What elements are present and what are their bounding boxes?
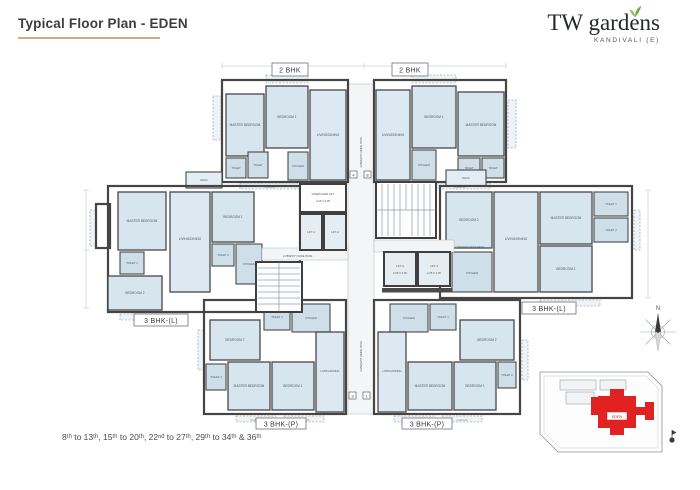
room-label: KITCHEN xyxy=(403,316,415,320)
room-label: LIVING/DINING xyxy=(383,369,402,373)
passage-label: 3.05M(10'0") WIDE PASS. xyxy=(359,136,363,168)
room-label: KITCHEN xyxy=(292,164,304,168)
room-label: TOILET xyxy=(253,163,263,167)
room-label: TOILET 1 xyxy=(126,261,138,265)
unit-3bhk-l-right: DECK CHAJJA BEDROOM 2 LIVING/DINING MAST… xyxy=(440,170,640,314)
lift-4-label: LIFT-4 xyxy=(430,264,438,268)
top-unit-labels: 2 BHK 2 BHK xyxy=(272,63,428,76)
room-label: LIVING/DINING xyxy=(505,237,528,241)
lift-4 xyxy=(418,252,450,286)
passage-label: 2.05M(6'9") WIDE PASS. xyxy=(455,245,485,249)
room-label: MASTER BEDROOM xyxy=(230,123,261,127)
lift-2-label: LIFT-2 xyxy=(331,230,339,234)
unit-label-top-right: 2 BHK xyxy=(399,68,421,75)
north-label: N xyxy=(656,306,660,312)
core-wall xyxy=(382,288,452,293)
room-label: TOILET 2 xyxy=(501,373,513,377)
room-label: BEDROOM 2 xyxy=(125,291,144,295)
room-label: KITCHEN xyxy=(305,316,317,320)
room-label: BEDROOM 1 xyxy=(223,215,242,219)
floor-plan: 3.05M(10'0") WIDE PASS. 3.05M(10'0") WID… xyxy=(0,0,700,490)
lift-3-dim: 2.05 X 2.05 xyxy=(393,271,407,275)
room-label: BEDROOM 2 xyxy=(225,338,244,342)
unit-3bhk-p-left: CHAJJA CHAJJA KITCHEN TOILET 1 BEDROOM 2… xyxy=(198,300,346,429)
room-living-dining xyxy=(170,192,210,292)
unit-3bhk-p-right: CHAJJA CHAJJA KITCHEN TOILET 1 LIVING/DI… xyxy=(374,300,528,429)
unit-label-bottom-right: 3 BHK-(P) xyxy=(410,422,445,429)
room-label: TOILET xyxy=(231,166,241,170)
unit-label-bottom-left: 3 BHK-(P) xyxy=(264,422,299,429)
keyplan-building xyxy=(566,392,594,404)
stretcher-lift xyxy=(300,184,346,212)
passage-label: 3.05M(10'0") WIDE PASS. xyxy=(359,340,363,372)
room-label: KITCHEN xyxy=(243,262,255,266)
unit-label-mid-right: 3 BHK-(L) xyxy=(532,306,566,313)
room-label: MASTER BEDROOM xyxy=(551,216,582,220)
room-label: TOILET xyxy=(464,166,474,170)
floors-note: 8ᵗʰ to 13ᵗʰ, 15ᵗʰ to 20ᵗʰ, 22ⁿᵈ to 27ᵗʰ,… xyxy=(62,432,262,442)
unit-2bhk-top-left: CHAJJA CHAJJA MASTER BEDROOM BEDROOM 1 L… xyxy=(213,75,348,189)
keyplan-building xyxy=(600,380,626,390)
room-label: TOILET 1 xyxy=(437,315,449,319)
central-corridor: 3.05M(10'0") WIDE PASS. 3.05M(10'0") WID… xyxy=(348,84,374,414)
room-label: BEDROOM 1 xyxy=(556,267,575,271)
room-label: BEDROOM 1 xyxy=(283,384,302,388)
room-label: DECK xyxy=(200,178,208,182)
keyplan-building xyxy=(560,380,596,390)
room-label: TOILET 2 xyxy=(605,228,617,232)
lift-3 xyxy=(384,252,416,286)
room-label: DECK xyxy=(462,176,470,180)
room-label: LIVING/DINING xyxy=(382,133,405,137)
room-label: TOILET 2 xyxy=(210,375,222,379)
room-label: BEDROOM 2 xyxy=(477,338,496,342)
key-plan: EDEN xyxy=(540,372,677,452)
room-label: MASTER BEDROOM xyxy=(415,384,446,388)
room-living-dining xyxy=(494,192,538,292)
room-label: TOILET 2 xyxy=(217,253,229,257)
room-label: TOILET 1 xyxy=(271,315,283,319)
room-label: MASTER BEDROOM xyxy=(127,219,158,223)
unit-label-mid-left: 3 BHK-(L) xyxy=(144,318,178,325)
room-label: LIVING/DINING xyxy=(317,133,340,137)
room-label: BEDROOM 1 xyxy=(424,115,443,119)
room-label: TOILET 1 xyxy=(605,202,617,206)
lift-3-label: LIFT-3 xyxy=(396,264,404,268)
room-label: LIVING/DINING xyxy=(321,369,340,373)
stretcher-lift-dim: 2.05 X 2.05 xyxy=(316,199,330,203)
lift-1-label: LIFT-1 xyxy=(307,230,315,234)
site-marker-icon xyxy=(669,430,676,443)
lift-4-dim: 2.05 X 2.05 xyxy=(427,271,441,275)
room-label: MASTER BEDROOM xyxy=(466,123,497,127)
room-label: KITCHEN xyxy=(418,163,430,167)
unit-2bhk-top-right: CHAJJA CHAJJA LIVING/DINING BEDROOM 1 MA… xyxy=(374,75,516,189)
room-label: MASTER BEDROOM xyxy=(234,384,265,388)
compass-needle xyxy=(655,313,661,332)
unit-label-top-left: 2 BHK xyxy=(279,68,301,75)
room-label: BEDROOM 2 xyxy=(459,218,478,222)
room-label: BEDROOM 1 xyxy=(277,115,296,119)
passage-label: 2.05M(6'9") WIDE PASS. xyxy=(283,254,313,258)
room-label: LIVING/DINING xyxy=(179,237,202,241)
eden-label: EDEN xyxy=(612,415,622,419)
room-label: TOILET xyxy=(488,166,498,170)
room-label: BEDROOM 1 xyxy=(465,384,484,388)
chajja-label: CHAJJA xyxy=(457,418,468,422)
stretcher-lift-label: STRETCHER LIFT xyxy=(312,192,335,196)
room-label: KITCHEN xyxy=(466,271,478,275)
north-compass: N xyxy=(640,306,676,351)
page: Typical Floor Plan - EDEN TW gardens KAN… xyxy=(0,0,700,490)
